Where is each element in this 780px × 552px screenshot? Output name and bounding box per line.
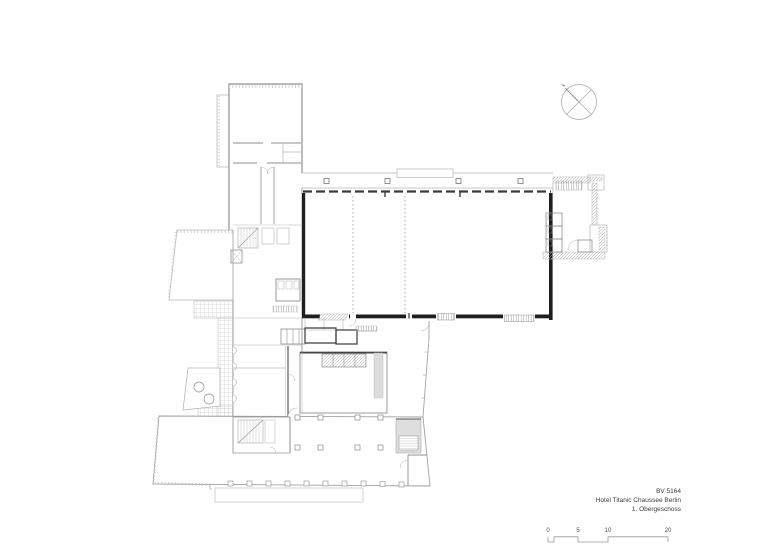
paved-terrace: [194, 301, 233, 318]
stair-east: [556, 181, 582, 190]
stair-core-southeast: [396, 419, 421, 453]
core-room: [336, 330, 357, 344]
floor-plan-drawing: [0, 0, 780, 552]
upper-terrace: [169, 230, 233, 300]
sheet-name: 1. Obergeschoss: [0, 505, 681, 514]
ramp-hatch: [318, 314, 348, 320]
lower-terrace: [183, 368, 220, 410]
partition-lines: [353, 196, 405, 313]
terraces: [169, 230, 237, 418]
scale-label-20: 20: [665, 528, 672, 534]
wc-room: [276, 279, 300, 301]
scale-label-5: 5: [576, 528, 579, 534]
project-id: BV 5164: [0, 487, 681, 496]
hall-walls: [302, 193, 553, 320]
vent-grille: [438, 314, 455, 321]
scale-bar: [548, 537, 668, 542]
scale-label-10: 10: [605, 528, 612, 534]
grand-hall: [302, 169, 553, 330]
north-arrow-icon: [561, 84, 597, 120]
courtyard: [300, 352, 387, 413]
scale-label-0: 0: [546, 528, 549, 534]
project-name: Hotel Titanic Chaussee Berlin: [0, 496, 681, 505]
title-block: BV 5164 Hotel Titanic Chaussee Berlin 1.…: [0, 487, 681, 514]
mid-wing: [233, 321, 429, 417]
vent-grille: [505, 315, 535, 322]
stair-core-west: [238, 228, 258, 248]
bay-scallops: [233, 347, 237, 402]
courtyard-strip: [374, 353, 383, 398]
east-wc-rooms: [546, 213, 562, 252]
slanted-facade: [423, 321, 429, 417]
roof-projection: [397, 169, 453, 178]
drawing-sheet: BV 5164 Hotel Titanic Chaussee Berlin 1.…: [0, 0, 780, 552]
elevator-bank: [281, 329, 305, 344]
vent-grille: [273, 306, 298, 312]
colonnade-columns: [324, 179, 523, 184]
